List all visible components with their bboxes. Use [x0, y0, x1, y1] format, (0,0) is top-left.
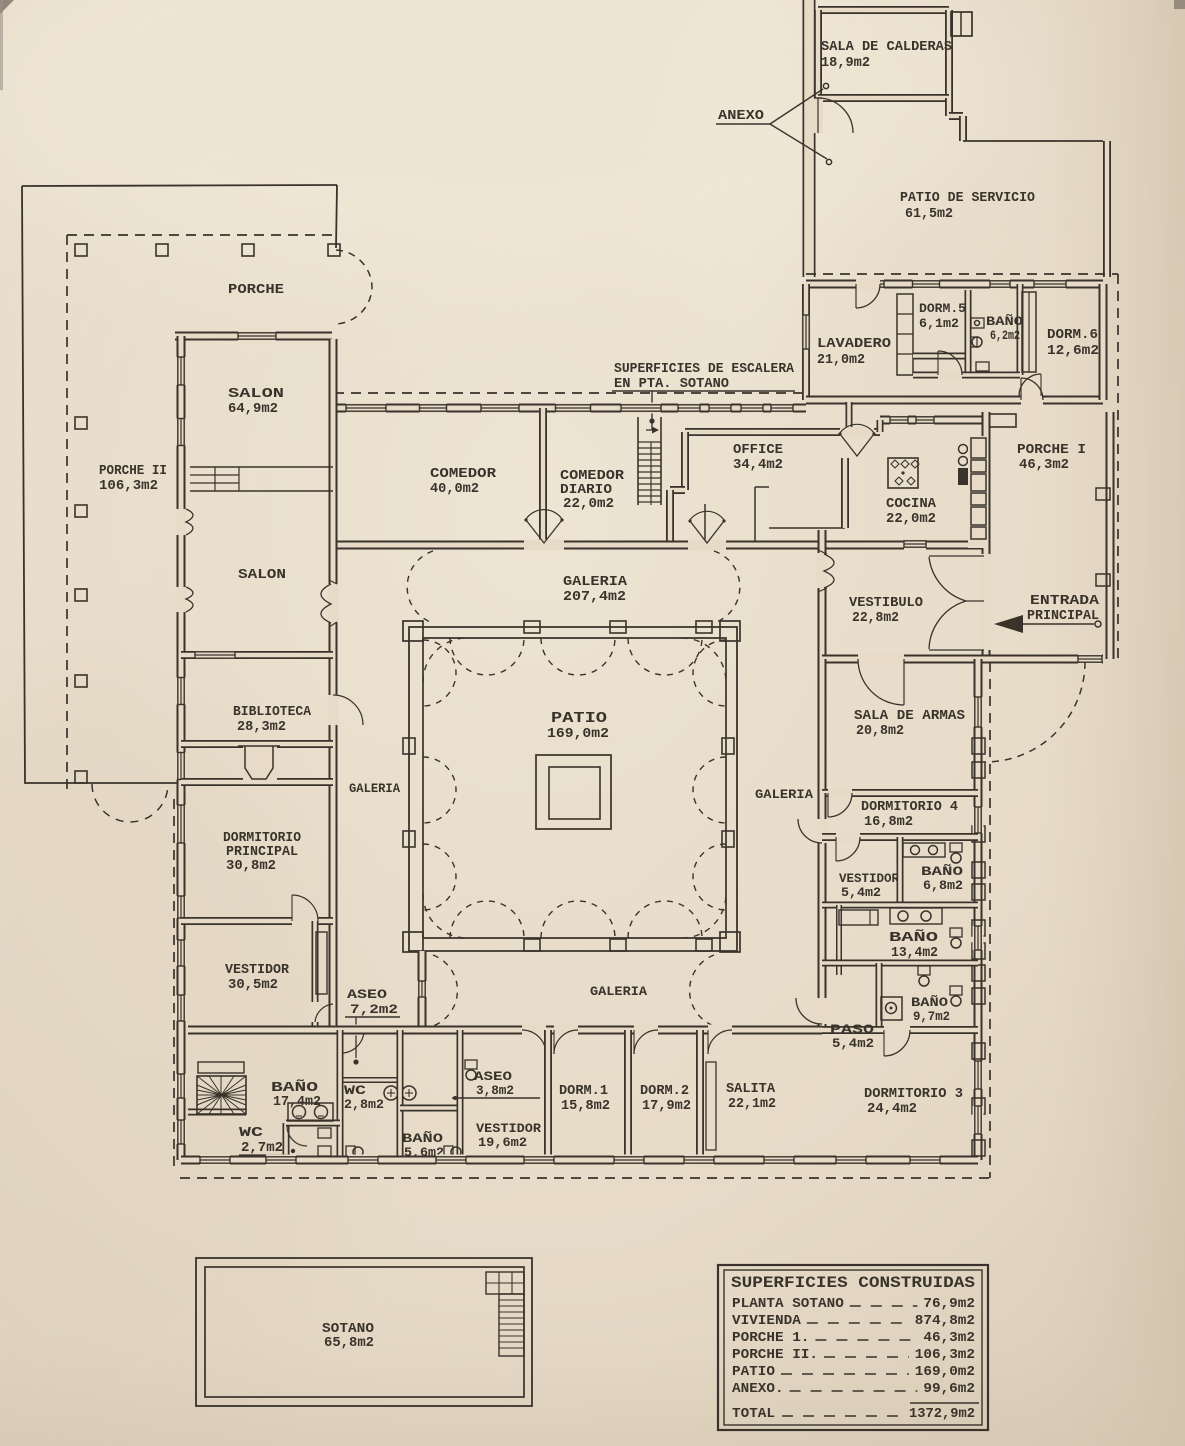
- svg-text:BAÑO: BAÑO: [921, 864, 963, 879]
- svg-text:DORM.1: DORM.1: [559, 1083, 608, 1099]
- svg-text:20,8m2: 20,8m2: [856, 723, 904, 739]
- svg-text:169,0m2: 169,0m2: [915, 1364, 975, 1380]
- svg-text:22,8m2: 22,8m2: [852, 610, 899, 626]
- svg-text:28,3m2: 28,3m2: [237, 719, 286, 735]
- svg-text:TOTAL: TOTAL: [732, 1406, 775, 1422]
- svg-text:BAÑO: BAÑO: [911, 995, 948, 1010]
- svg-text:207,4m2: 207,4m2: [563, 589, 626, 605]
- svg-text:VESTIDOR: VESTIDOR: [476, 1121, 541, 1136]
- svg-text:13,4m2: 13,4m2: [891, 945, 938, 961]
- svg-text:7,2m2: 7,2m2: [350, 1002, 398, 1017]
- svg-text:EN PTA. SOTANO: EN PTA. SOTANO: [614, 376, 729, 392]
- svg-text:BAÑO: BAÑO: [889, 928, 938, 946]
- svg-text:ANEXO: ANEXO: [718, 108, 764, 124]
- svg-text:DORM.2: DORM.2: [640, 1083, 689, 1099]
- svg-text:6,8m2: 6,8m2: [923, 878, 963, 893]
- svg-text:PLANTA SOTANO: PLANTA SOTANO: [732, 1296, 844, 1312]
- svg-text:ASEO: ASEO: [347, 987, 387, 1002]
- svg-text:DORM.5: DORM.5: [919, 301, 966, 316]
- svg-text:COCINA: COCINA: [886, 496, 937, 512]
- svg-text:VESTIDOR: VESTIDOR: [225, 962, 290, 978]
- svg-text:61,5m2: 61,5m2: [905, 206, 953, 222]
- svg-text:ENTRADA: ENTRADA: [1030, 593, 1100, 609]
- svg-text:SUPERFICIES CONSTRUIDAS: SUPERFICIES CONSTRUIDAS: [731, 1274, 975, 1292]
- svg-text:22,0m2: 22,0m2: [886, 511, 936, 527]
- svg-text:GALERIA: GALERIA: [563, 574, 628, 590]
- svg-text:24,4m2: 24,4m2: [867, 1101, 917, 1117]
- svg-text:ANEXO.: ANEXO.: [732, 1381, 784, 1397]
- svg-text:30,5m2: 30,5m2: [228, 977, 278, 993]
- svg-text:30,8m2: 30,8m2: [226, 858, 276, 874]
- svg-text:ASEO: ASEO: [474, 1069, 512, 1084]
- svg-text:PORCHE II: PORCHE II: [99, 463, 167, 479]
- svg-text:22,1m2: 22,1m2: [728, 1096, 776, 1112]
- svg-text:5,4m2: 5,4m2: [841, 885, 881, 900]
- svg-text:SALON: SALON: [238, 567, 286, 583]
- svg-text:BAÑO: BAÑO: [402, 1131, 443, 1146]
- svg-text:PATIO DE SERVICIO: PATIO DE SERVICIO: [900, 190, 1035, 206]
- svg-text:BAÑO: BAÑO: [986, 314, 1023, 329]
- svg-text:17,4m2: 17,4m2: [273, 1094, 321, 1110]
- svg-text:LAVADERO: LAVADERO: [817, 336, 891, 352]
- svg-text:874,8m2: 874,8m2: [915, 1313, 975, 1329]
- svg-text:76,9m2: 76,9m2: [923, 1296, 975, 1312]
- svg-text:BIBLIOTECA: BIBLIOTECA: [233, 704, 312, 720]
- svg-text:1372,9m2: 1372,9m2: [909, 1406, 975, 1422]
- svg-text:VESTIDOR: VESTIDOR: [839, 871, 899, 886]
- svg-text:22,0m2: 22,0m2: [563, 496, 614, 512]
- svg-text:5,4m2: 5,4m2: [832, 1036, 874, 1051]
- svg-text:SALITA: SALITA: [726, 1081, 776, 1097]
- svg-text:106,3m2: 106,3m2: [915, 1347, 975, 1363]
- svg-text:PRINCIPAL: PRINCIPAL: [1027, 608, 1099, 624]
- svg-text:21,0m2: 21,0m2: [817, 352, 865, 368]
- svg-text:PORCHE 1.: PORCHE 1.: [732, 1330, 809, 1346]
- svg-text:46,3m2: 46,3m2: [1019, 457, 1069, 473]
- svg-text:17,9m2: 17,9m2: [642, 1098, 691, 1114]
- svg-text:PASO: PASO: [830, 1022, 874, 1037]
- svg-text:SALA DE ARMAS: SALA DE ARMAS: [854, 708, 965, 724]
- svg-text:2,8m2: 2,8m2: [344, 1097, 384, 1112]
- svg-text:9,7m2: 9,7m2: [913, 1009, 950, 1024]
- svg-text:15,8m2: 15,8m2: [561, 1098, 610, 1114]
- svg-text:2,7m2: 2,7m2: [241, 1140, 283, 1156]
- svg-text:DORM.6: DORM.6: [1047, 327, 1098, 343]
- svg-text:GALERIA: GALERIA: [349, 781, 400, 796]
- svg-text:PATIO: PATIO: [732, 1364, 775, 1380]
- svg-text:GALERIA: GALERIA: [590, 984, 647, 999]
- svg-text:VIVIENDA: VIVIENDA: [732, 1313, 801, 1329]
- svg-text:19,6m2: 19,6m2: [478, 1135, 527, 1150]
- svg-text:3,8m2: 3,8m2: [476, 1083, 514, 1098]
- svg-text:40,0m2: 40,0m2: [430, 481, 479, 497]
- svg-text:169,0m2: 169,0m2: [547, 726, 609, 742]
- svg-text:PORCHE I: PORCHE I: [1017, 442, 1086, 458]
- svg-text:64,9m2: 64,9m2: [228, 401, 278, 417]
- svg-text:65,8m2: 65,8m2: [324, 1335, 374, 1351]
- svg-text:PORCHE II.: PORCHE II.: [732, 1347, 818, 1363]
- svg-text:GALERIA: GALERIA: [755, 787, 813, 802]
- svg-text:106,3m2: 106,3m2: [99, 478, 158, 494]
- svg-text:6,2m2: 6,2m2: [990, 328, 1020, 343]
- svg-text:46,3m2: 46,3m2: [923, 1330, 975, 1346]
- svg-text:SALA DE CALDERAS: SALA DE CALDERAS: [821, 39, 952, 55]
- svg-text:OFFICE: OFFICE: [733, 442, 783, 458]
- svg-text:SUPERFICIES DE ESCALERA: SUPERFICIES DE ESCALERA: [614, 361, 795, 377]
- svg-text:16,8m2: 16,8m2: [864, 814, 913, 830]
- svg-text:6,1m2: 6,1m2: [919, 316, 959, 331]
- svg-text:WC: WC: [344, 1083, 366, 1098]
- svg-text:VESTIBULO: VESTIBULO: [849, 595, 923, 611]
- svg-text:34,4m2: 34,4m2: [733, 457, 783, 473]
- svg-text:PORCHE: PORCHE: [228, 282, 284, 298]
- svg-text:COMEDOR: COMEDOR: [430, 466, 497, 482]
- svg-text:WC: WC: [239, 1125, 264, 1141]
- svg-text:99,6m2: 99,6m2: [923, 1381, 975, 1397]
- svg-text:SALON: SALON: [228, 386, 284, 402]
- svg-text:PATIO: PATIO: [551, 710, 607, 727]
- svg-text:18,9m2: 18,9m2: [821, 55, 870, 71]
- svg-text:12,6m2: 12,6m2: [1047, 343, 1099, 359]
- svg-text:DORMITORIO 4: DORMITORIO 4: [861, 799, 958, 815]
- svg-text:DORMITORIO 3: DORMITORIO 3: [864, 1086, 963, 1102]
